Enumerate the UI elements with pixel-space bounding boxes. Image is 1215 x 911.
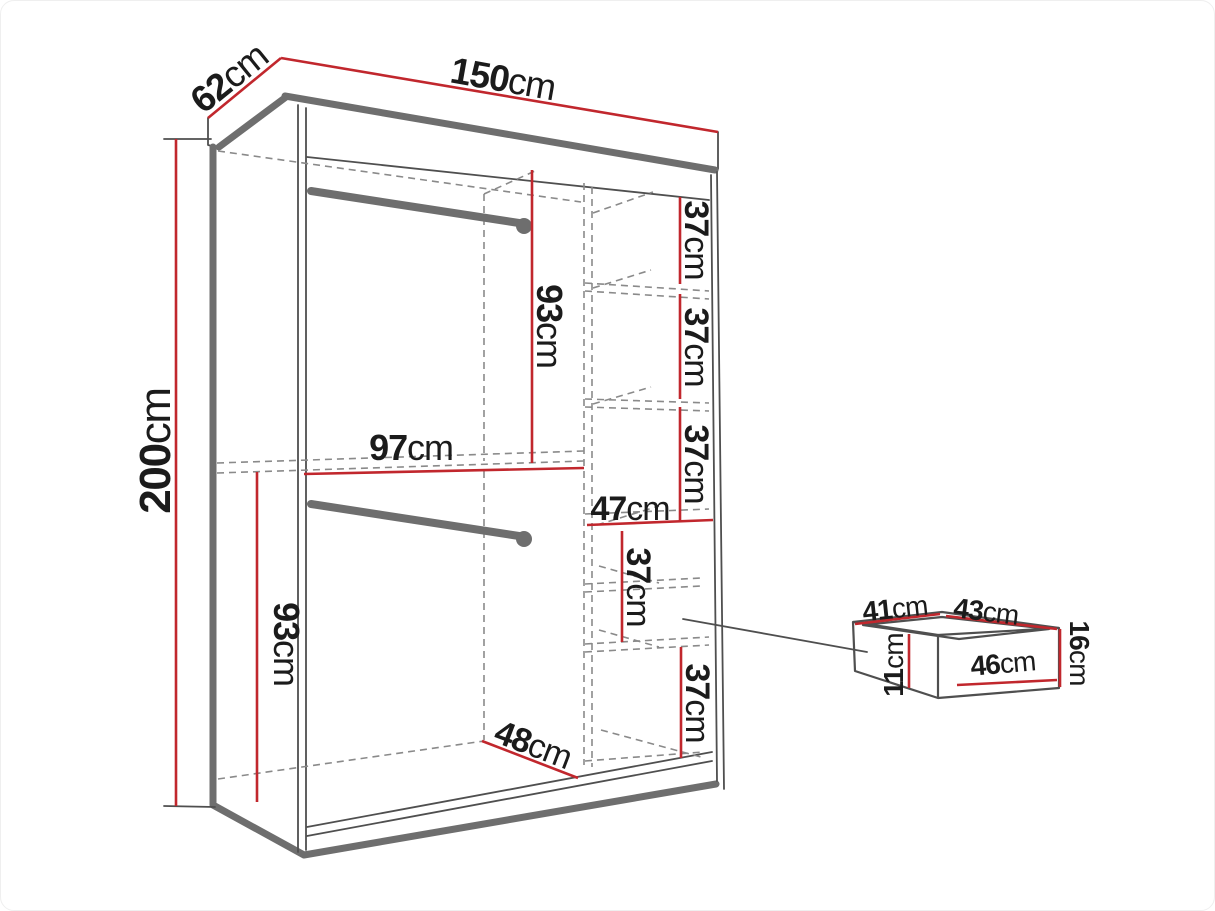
dim-label-drawer-compartment-37: 37cm (621, 547, 655, 626)
dim-label-drawer-front-width-46: 46cm (969, 647, 1036, 681)
dim-label-drawer-inner-height-11: 11cm (880, 633, 908, 697)
dim-label-hanging-width-97: 97cm (369, 430, 453, 466)
dim-label-height-200: 200cm (134, 388, 178, 513)
dim-label-bottom-compartment-37: 37cm (680, 663, 714, 742)
hanging-rail-lower (311, 504, 532, 547)
diagram-line-art (1, 1, 1215, 911)
dim-label-upper-section-93: 93cm (531, 284, 567, 368)
dim-label-shelf-gap-3-37: 37cm (679, 424, 713, 503)
dim-label-shelf-width-47: 47cm (590, 492, 669, 526)
drawer-pointer-line (683, 619, 867, 652)
dim-label-drawer-front-height-16: 16cm (1065, 620, 1093, 685)
dim-label-shelf-gap-1-37: 37cm (679, 200, 713, 279)
dim-label-shelf-gap-2-37: 37cm (679, 307, 713, 386)
dim-label-drawer-depth-41: 41cm (861, 592, 929, 627)
wardrobe-dimension-diagram: 62cm 150cm 200cm 93cm 97cm 37cm 37cm 37c… (0, 0, 1215, 911)
hanging-rail-upper (311, 191, 532, 234)
dim-label-lower-section-93: 93cm (268, 602, 304, 686)
